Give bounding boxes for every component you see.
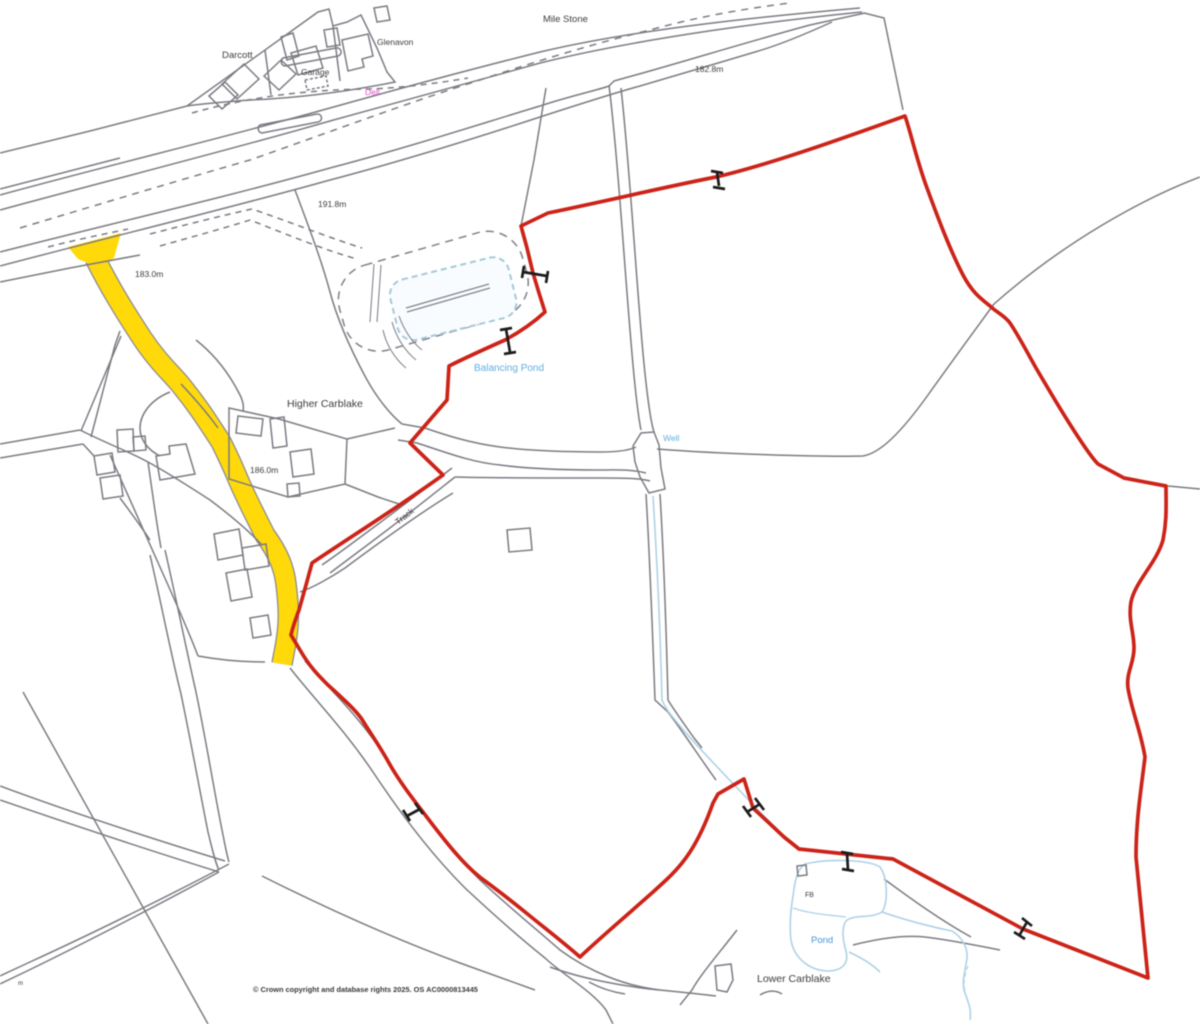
svg-text:191.8m: 191.8m — [318, 199, 346, 209]
svg-text:Well: Well — [663, 433, 679, 443]
svg-text:© Crown copyright and database: © Crown copyright and database rights 20… — [253, 985, 478, 994]
svg-text:Higher Carblake: Higher Carblake — [287, 398, 363, 410]
svg-text:186.0m: 186.0m — [250, 465, 278, 475]
svg-text:FB: FB — [805, 892, 814, 899]
svg-text:Mile Stone: Mile Stone — [543, 14, 588, 25]
svg-text:Balancing Pond: Balancing Pond — [474, 363, 544, 374]
svg-text:Pond: Pond — [811, 935, 833, 946]
svg-text:Glenavon: Glenavon — [377, 37, 414, 47]
svg-text:182.8m: 182.8m — [695, 64, 723, 74]
svg-text:Lower Carblake: Lower Carblake — [757, 973, 831, 985]
svg-text:Dell: Dell — [365, 87, 380, 97]
svg-text:183.0m: 183.0m — [135, 269, 163, 279]
svg-text:Darcott: Darcott — [222, 50, 253, 61]
svg-text:m: m — [18, 981, 23, 987]
svg-text:Garage: Garage — [301, 67, 330, 77]
